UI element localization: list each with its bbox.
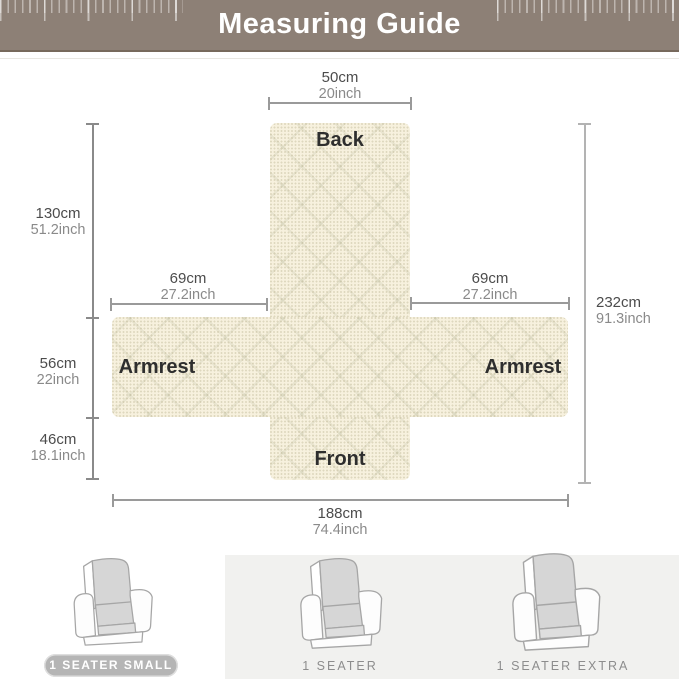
armrest-left-piece-label: Armrest	[97, 356, 217, 379]
dim-label-total-height: 232cm 91.3inch	[596, 295, 679, 327]
measuring-guide-image: Measuring Guide Back Front Armrest Armre…	[0, 0, 679, 679]
dim-label-right-armrest-width: 69cm 27.2inch	[430, 271, 550, 303]
back-piece-label: Back	[270, 129, 410, 152]
dim-cm: 56cm	[8, 356, 108, 372]
page-title: Measuring Guide	[0, 8, 679, 41]
size-option-1-seater-small-badge: 1 SEATER SMALL	[44, 654, 178, 677]
recliner-illustration-1-seater-small	[60, 556, 164, 646]
dim-tick-armrest-bottom	[86, 417, 99, 419]
dim-label-armrest-height: 56cm 22inch	[8, 356, 108, 388]
dim-line-left-armrest-width	[110, 303, 268, 305]
dim-inch: 74.4inch	[280, 523, 400, 538]
size-option-1-seater-extra-label: 1 SEATER EXTRA	[488, 659, 638, 673]
dim-label-left-armrest-width: 69cm 27.2inch	[128, 271, 248, 303]
header-divider	[0, 58, 679, 59]
armrest-right-piece-label: Armrest	[463, 356, 583, 379]
dim-line-total-height	[584, 123, 586, 484]
recliner-illustration-1-seater-extra	[497, 551, 613, 651]
cover-back-seat-front-piece	[270, 123, 410, 480]
dim-line-total-width	[112, 499, 569, 501]
dim-inch: 20inch	[280, 87, 400, 102]
dim-cm: 130cm	[8, 206, 108, 222]
recliner-illustration-1-seater	[286, 556, 394, 649]
dim-label-top-width: 50cm 20inch	[280, 70, 400, 102]
dim-cm: 46cm	[8, 432, 108, 448]
dim-inch: 18.1inch	[8, 449, 108, 464]
dim-cm: 232cm	[596, 295, 679, 311]
dim-inch: 51.2inch	[8, 223, 108, 238]
dim-cm: 69cm	[128, 271, 248, 287]
front-piece-label: Front	[270, 448, 410, 471]
dim-line-left-height	[92, 123, 94, 480]
dim-inch: 91.3inch	[596, 312, 679, 327]
dim-inch: 22inch	[8, 373, 108, 388]
dim-inch: 27.2inch	[430, 288, 550, 303]
dim-label-front-height: 46cm 18.1inch	[8, 432, 108, 464]
dim-line-top-width	[268, 102, 412, 104]
dim-inch: 27.2inch	[128, 288, 248, 303]
dim-label-back-height: 130cm 51.2inch	[8, 206, 108, 238]
dim-cm: 69cm	[430, 271, 550, 287]
dim-cm: 50cm	[280, 70, 400, 86]
header-bar: Measuring Guide	[0, 0, 679, 52]
dim-tick-armrest-top	[86, 317, 99, 319]
dim-label-total-width: 188cm 74.4inch	[280, 506, 400, 538]
dim-cm: 188cm	[280, 506, 400, 522]
size-option-1-seater-label: 1 SEATER	[275, 659, 405, 673]
